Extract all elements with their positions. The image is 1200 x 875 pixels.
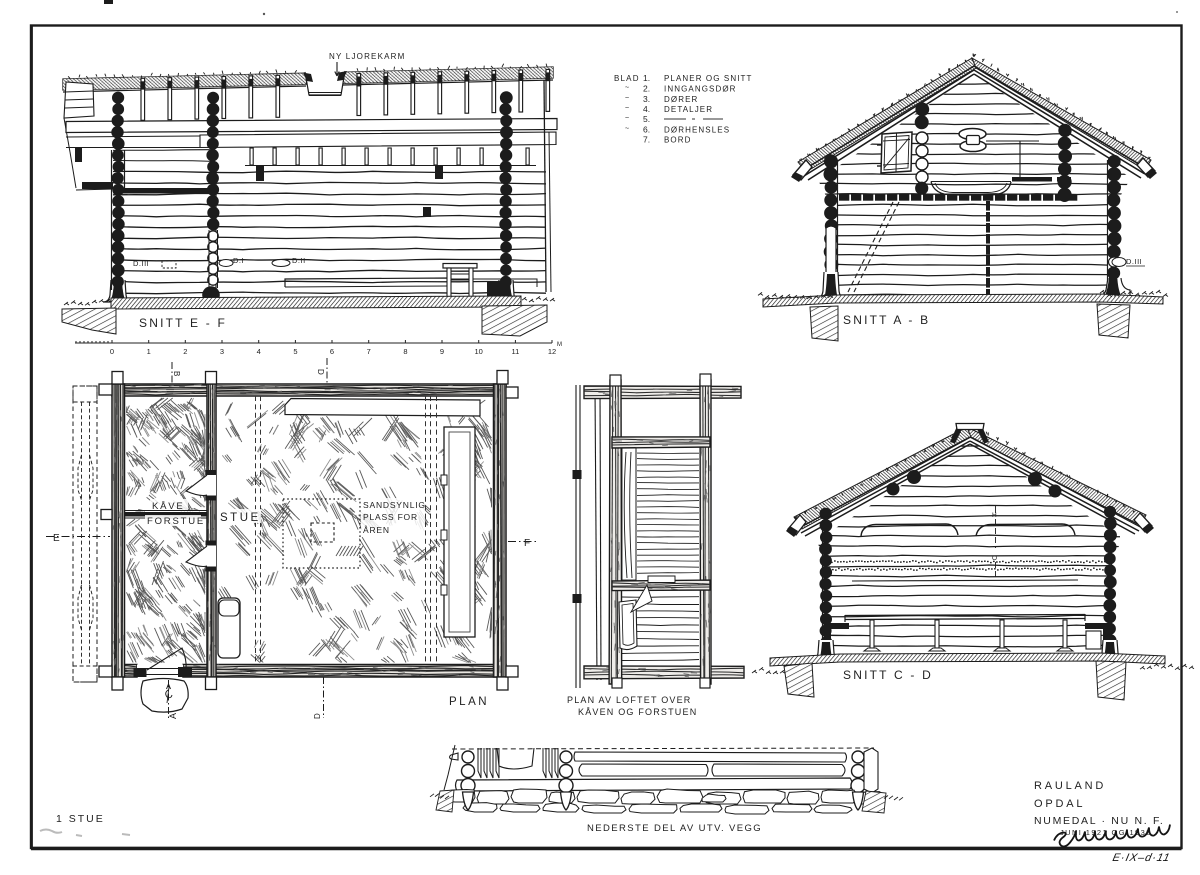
svg-text:NY LJOREKARM: NY LJOREKARM bbox=[329, 52, 406, 61]
svg-text:0: 0 bbox=[110, 347, 114, 356]
svg-text:D.I: D.I bbox=[233, 256, 244, 265]
svg-text:7: 7 bbox=[367, 347, 371, 356]
svg-text:D.III: D.III bbox=[133, 259, 149, 268]
svg-text:~: ~ bbox=[625, 85, 629, 92]
svg-text:1: 1 bbox=[147, 347, 151, 356]
svg-text:11: 11 bbox=[512, 347, 520, 356]
svg-text:3.: 3. bbox=[643, 94, 650, 104]
svg-text:PLANER OG SNITT: PLANER OG SNITT bbox=[664, 74, 753, 83]
svg-text:4: 4 bbox=[257, 347, 261, 356]
svg-text:4.: 4. bbox=[643, 104, 650, 114]
svg-text:FORSTUE: FORSTUE bbox=[147, 516, 205, 527]
svg-text:3: 3 bbox=[220, 347, 224, 356]
svg-text:5: 5 bbox=[293, 347, 297, 356]
svg-text:DETALJER: DETALJER bbox=[664, 105, 713, 114]
svg-text:A: A bbox=[168, 713, 178, 719]
svg-text:5.: 5. bbox=[643, 114, 650, 124]
svg-text:6.: 6. bbox=[643, 125, 650, 135]
svg-text:~: ~ bbox=[625, 95, 629, 102]
svg-text:OPDAL: OPDAL bbox=[1034, 798, 1085, 810]
svg-text:ÅREN: ÅREN bbox=[363, 525, 390, 535]
svg-text:~: ~ bbox=[625, 126, 629, 133]
svg-text:E: E bbox=[53, 533, 60, 544]
svg-text:D: D bbox=[316, 369, 325, 375]
svg-text:6: 6 bbox=[330, 347, 334, 356]
svg-text:~: ~ bbox=[625, 115, 629, 122]
svg-text:PLAN: PLAN bbox=[449, 696, 489, 708]
svg-text:STUE: STUE bbox=[220, 512, 261, 524]
svg-text:E·IX–d·11: E·IX–d·11 bbox=[1111, 852, 1171, 864]
svg-text:10: 10 bbox=[475, 347, 483, 356]
svg-text:B: B bbox=[172, 371, 181, 376]
svg-text:RAULAND: RAULAND bbox=[1034, 780, 1106, 792]
svg-text:2.: 2. bbox=[643, 84, 650, 94]
svg-text:SNITT A - B: SNITT A - B bbox=[843, 313, 930, 327]
svg-text:SNITT E - F: SNITT E - F bbox=[139, 316, 227, 330]
svg-text:D: D bbox=[313, 713, 322, 719]
svg-text:NUMEDAL · NU N. F.: NUMEDAL · NU N. F. bbox=[1034, 815, 1165, 827]
svg-text:F: F bbox=[524, 538, 530, 549]
svg-text:8: 8 bbox=[403, 347, 407, 356]
svg-text:H: H bbox=[992, 512, 997, 519]
svg-text:PLASS FOR: PLASS FOR bbox=[363, 512, 418, 522]
svg-text:12: 12 bbox=[548, 347, 556, 356]
svg-text:SANDSYNLIG: SANDSYNLIG bbox=[363, 500, 426, 510]
svg-text:D.II: D.II bbox=[292, 256, 306, 265]
svg-text:BLAD: BLAD bbox=[614, 74, 640, 83]
svg-text:DØRER: DØRER bbox=[664, 95, 698, 104]
svg-text:1 STUE: 1 STUE bbox=[56, 813, 105, 825]
svg-text:BORD: BORD bbox=[664, 136, 692, 145]
svg-text:DØRHENSLES: DØRHENSLES bbox=[664, 126, 730, 135]
svg-text:7.: 7. bbox=[643, 135, 650, 145]
svg-text:~: ~ bbox=[625, 105, 629, 112]
svg-text:KÅVEN OG FORSTUEN: KÅVEN OG FORSTUEN bbox=[578, 707, 697, 717]
svg-text:SNITT C - D: SNITT C - D bbox=[843, 668, 933, 682]
svg-text:9: 9 bbox=[440, 347, 444, 356]
svg-text:PLAN AV LOFTET OVER: PLAN AV LOFTET OVER bbox=[567, 695, 692, 705]
svg-text:D.III: D.III bbox=[1126, 257, 1142, 266]
svg-text:1.: 1. bbox=[643, 73, 650, 83]
svg-text:NEDERSTE DEL AV UTV. VEGG: NEDERSTE DEL AV UTV. VEGG bbox=[587, 823, 762, 834]
svg-text:INNGANGSDØR: INNGANGSDØR bbox=[664, 85, 737, 94]
svg-text:M: M bbox=[557, 342, 562, 348]
svg-text:KÅVE: KÅVE bbox=[152, 501, 185, 512]
svg-text:2: 2 bbox=[183, 347, 187, 356]
